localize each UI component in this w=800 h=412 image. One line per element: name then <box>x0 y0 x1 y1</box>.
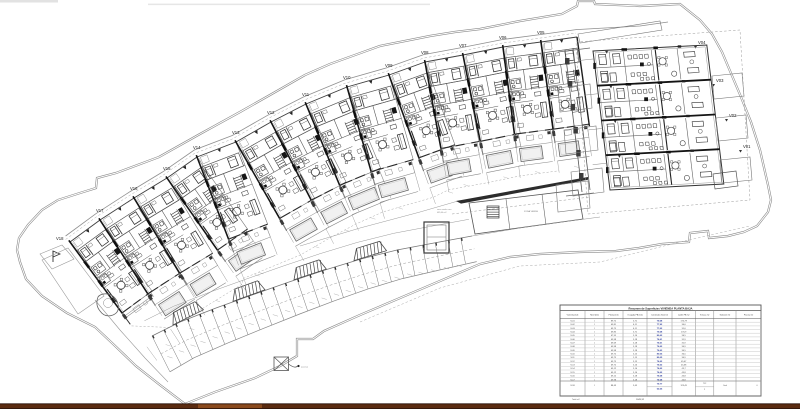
svg-text:V16: V16 <box>130 186 138 191</box>
svg-text:69,75: 69,75 <box>611 328 617 330</box>
svg-text:76,62: 76,62 <box>657 372 663 374</box>
svg-text:76,62: 76,62 <box>657 368 663 370</box>
svg-text:76,62: 76,62 <box>657 346 663 348</box>
svg-text:88,43: 88,43 <box>611 385 617 387</box>
svg-text:Piscina m2: Piscina m2 <box>744 315 753 317</box>
svg-text:89,72: 89,72 <box>611 320 617 322</box>
svg-text:V02: V02 <box>729 113 737 118</box>
svg-text:V07: V07 <box>459 43 467 48</box>
svg-text:125,45: 125,45 <box>681 385 688 387</box>
svg-text:80,05: 80,05 <box>657 357 663 359</box>
svg-text:76,61: 76,61 <box>657 339 663 341</box>
svg-text:Oval: Oval <box>723 385 728 387</box>
svg-text:69,69: 69,69 <box>611 343 617 345</box>
svg-text:Vivienda (m2): Vivienda (m2) <box>567 315 579 317</box>
svg-text:69,72: 69,72 <box>611 365 617 367</box>
svg-text:77,92: 77,92 <box>657 324 663 326</box>
svg-text:69,98: 69,98 <box>611 339 617 341</box>
svg-text:Construida Total m2: Construida Total m2 <box>651 314 668 317</box>
svg-text:69,98: 69,98 <box>611 346 617 348</box>
svg-text:V09: V09 <box>385 63 393 68</box>
svg-text:52,55: 52,55 <box>657 389 663 391</box>
svg-text:79,58: 79,58 <box>657 332 663 334</box>
svg-text:V10: V10 <box>343 75 351 80</box>
svg-text:77,62: 77,62 <box>657 328 663 330</box>
svg-text:69,75: 69,75 <box>611 357 617 359</box>
svg-text:Planta (m2): Planta (m2) <box>609 314 619 317</box>
svg-text:V08: V08 <box>421 50 429 55</box>
svg-text:V14: V14 <box>193 145 201 150</box>
svg-text:zona verde com.: zona verde com. <box>437 209 452 211</box>
svg-text:1843,32: 1843,32 <box>636 399 645 401</box>
svg-text:V06: V06 <box>499 35 507 40</box>
svg-text:V11: V11 <box>302 92 310 97</box>
svg-text:Jardin PB m2: Jardin PB m2 <box>678 314 689 317</box>
svg-text:Terraza m2: Terraza m2 <box>700 314 709 317</box>
svg-text:Total m2: Total m2 <box>572 398 580 401</box>
svg-text:V15: V15 <box>163 166 171 171</box>
svg-text:76,63: 76,63 <box>657 350 663 352</box>
svg-text:69,12: 69,12 <box>611 376 617 378</box>
svg-text:79,58: 79,58 <box>657 320 663 322</box>
svg-text:69,81: 69,81 <box>611 324 617 326</box>
svg-text:80,62: 80,62 <box>657 335 663 337</box>
svg-text:V05: V05 <box>537 30 545 35</box>
svg-text:Nivel (m2): Nivel (m2) <box>590 315 599 317</box>
svg-text:V03: V03 <box>716 78 724 83</box>
svg-text:acceso: acceso <box>301 367 309 369</box>
svg-text:Ocupada PB (m2): Ocupada PB (m2) <box>627 315 643 317</box>
svg-text:76,62: 76,62 <box>657 365 663 367</box>
svg-text:76,61: 76,61 <box>657 343 663 345</box>
svg-text:69,12: 69,12 <box>611 368 617 370</box>
svg-text:Resumen de Superficies VIVIEND: Resumen de Superficies VIVIENDA PLANTA B… <box>629 306 693 310</box>
svg-text:V17: V17 <box>96 208 104 213</box>
svg-text:Solarium m2: Solarium m2 <box>720 314 731 317</box>
svg-text:V13: V13 <box>232 130 240 135</box>
svg-text:175,79: 175,79 <box>681 320 688 322</box>
svg-text:170,9: 170,9 <box>681 332 687 334</box>
svg-text:80,05: 80,05 <box>657 354 663 356</box>
svg-text:67,95: 67,95 <box>611 335 617 337</box>
svg-text:V04: V04 <box>698 40 706 45</box>
svg-text:76,68: 76,68 <box>657 376 663 378</box>
svg-text:76,62: 76,62 <box>657 361 663 363</box>
svg-text:69,75: 69,75 <box>611 361 617 363</box>
svg-text:V12: V12 <box>267 110 275 115</box>
svg-text:69,72: 69,72 <box>611 354 617 356</box>
svg-text:ZONA VERDE: ZONA VERDE <box>524 210 539 213</box>
svg-text:V18: V18 <box>56 236 64 241</box>
svg-text:485,00 m2: 485,00 m2 <box>437 212 447 214</box>
svg-text:69,98: 69,98 <box>611 350 617 352</box>
svg-text:45,68: 45,68 <box>681 365 687 367</box>
svg-text:45,67: 45,67 <box>681 361 687 363</box>
svg-text:69,85: 69,85 <box>611 332 617 334</box>
svg-text:69,12: 69,12 <box>611 372 617 374</box>
svg-text:79,77: 79,77 <box>657 384 663 386</box>
